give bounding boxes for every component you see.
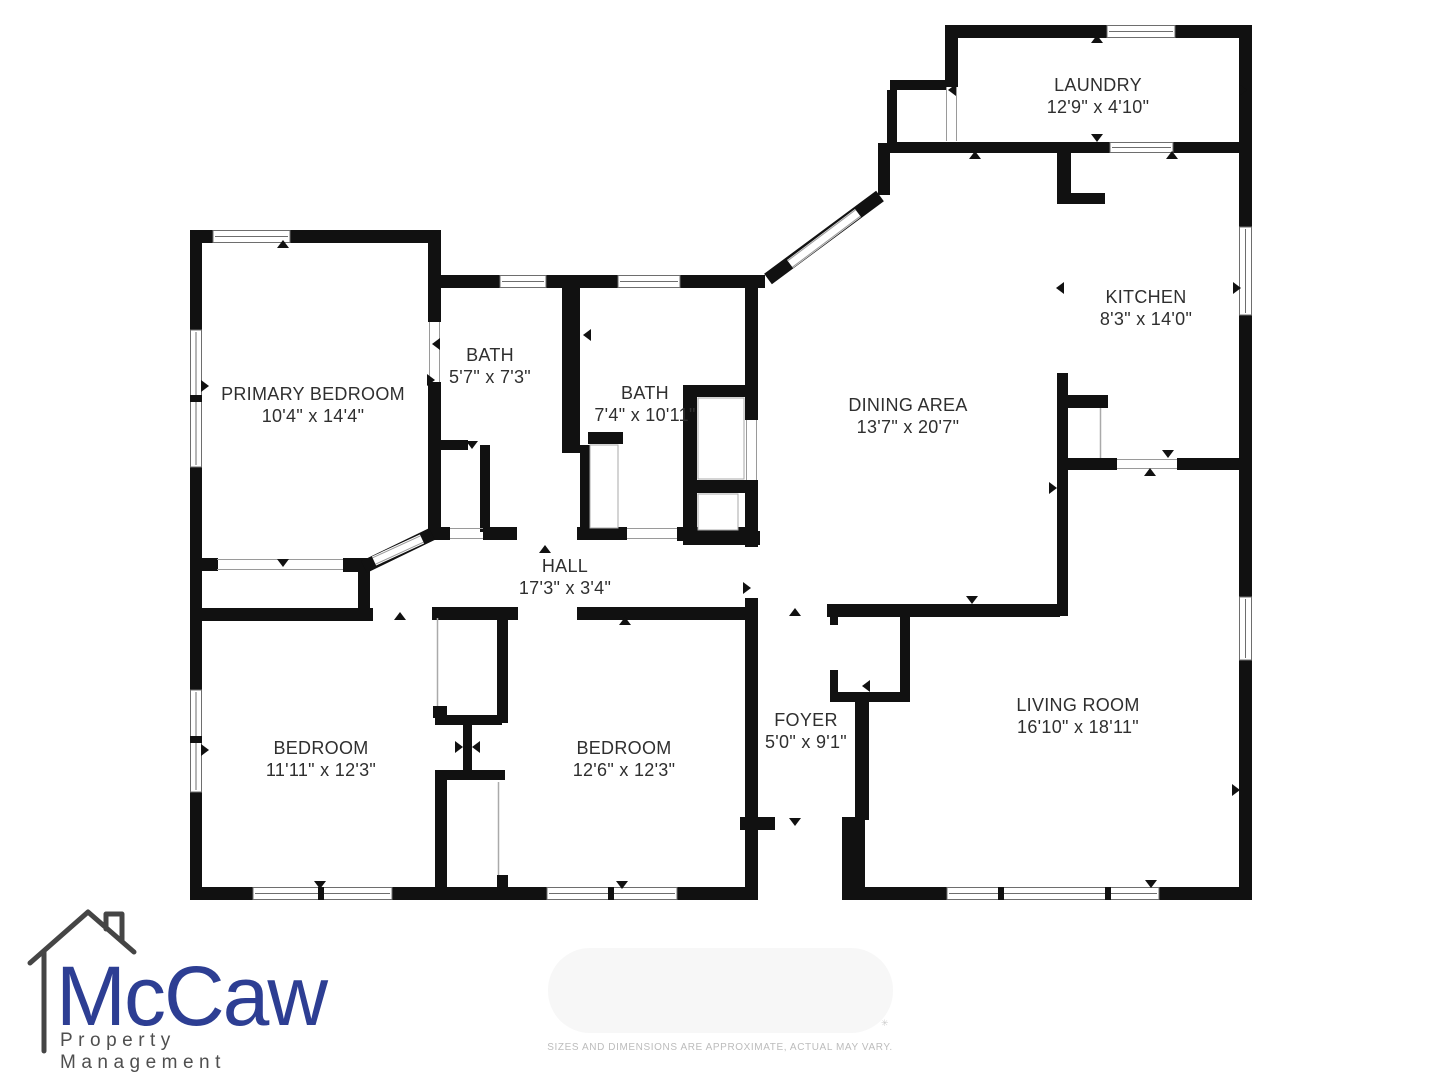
room-dimensions: 17'3" x 3'4" (519, 577, 611, 599)
room-label-bath-1: BATH5'7" x 7'3" (449, 344, 531, 388)
room-label-primary-bedroom: PRIMARY BEDROOM10'4" x 14'4" (221, 383, 405, 427)
room-dimensions: 8'3" x 14'0" (1100, 308, 1192, 330)
door-arrow (743, 582, 751, 594)
room-label-foyer: FOYER5'0" x 9'1" (765, 709, 847, 753)
room-dimensions: 12'9" x 4'10" (1047, 96, 1150, 118)
door-arrow (862, 680, 870, 692)
disclaimer-text: SIZES AND DIMENSIONS ARE APPROXIMATE, AC… (0, 1042, 1440, 1053)
floor-plan-drawing (0, 0, 1440, 1080)
room-name: BATH (594, 382, 695, 404)
room-name: BATH (449, 344, 531, 366)
room-dimensions: 16'10" x 18'11" (1016, 716, 1139, 738)
door-arrow (1049, 482, 1057, 494)
room-name: BEDROOM (573, 737, 676, 759)
room-dimensions: 13'7" x 20'7" (848, 416, 967, 438)
room-name: FOYER (765, 709, 847, 731)
door-arrow (455, 741, 463, 753)
door-arrow (539, 545, 551, 553)
room-name: PRIMARY BEDROOM (221, 383, 405, 405)
room-name: HALL (519, 555, 611, 577)
room-name: LAUNDRY (1047, 74, 1150, 96)
floor-plan-page: ✳ (0, 0, 1440, 1080)
door-arrow (1056, 282, 1064, 294)
room-label-bath-2: BATH7'4" x 10'11" (594, 382, 695, 426)
door-arrow (583, 329, 591, 341)
door-arrow (966, 596, 978, 604)
room-dimensions: 7'4" x 10'11" (594, 404, 695, 426)
closet-lines (438, 398, 1101, 875)
room-dimensions: 12'6" x 12'3" (573, 759, 676, 781)
door-arrow (1091, 134, 1103, 142)
door-arrow (789, 608, 801, 616)
room-label-hall: HALL17'3" x 3'4" (519, 555, 611, 599)
door-arrow (1145, 880, 1157, 888)
room-label-laundry: LAUNDRY12'9" x 4'10" (1047, 74, 1150, 118)
room-dimensions: 5'0" x 9'1" (765, 731, 847, 753)
room-dimensions: 10'4" x 14'4" (221, 405, 405, 427)
door-arrow (277, 559, 289, 567)
room-label-bedroom-2: BEDROOM12'6" x 12'3" (573, 737, 676, 781)
room-name: DINING AREA (848, 394, 967, 416)
room-name: KITCHEN (1100, 286, 1192, 308)
room-label-kitchen: KITCHEN8'3" x 14'0" (1100, 286, 1192, 330)
door-arrow (1232, 784, 1240, 796)
room-label-dining-area: DINING AREA13'7" x 20'7" (848, 394, 967, 438)
door-arrow (201, 744, 209, 756)
door-arrow (432, 338, 440, 350)
room-label-living-room: LIVING ROOM16'10" x 18'11" (1016, 694, 1139, 738)
door-arrow (472, 741, 480, 753)
room-dimensions: 11'11" x 12'3" (266, 759, 376, 781)
door-arrow (1144, 468, 1156, 476)
room-name: BEDROOM (266, 737, 376, 759)
room-dimensions: 5'7" x 7'3" (449, 366, 531, 388)
room-name: LIVING ROOM (1016, 694, 1139, 716)
door-arrow (394, 612, 406, 620)
door-arrow (201, 380, 209, 392)
door-arrow (1162, 450, 1174, 458)
room-label-bedroom-1: BEDROOM11'11" x 12'3" (266, 737, 376, 781)
door-arrow (789, 818, 801, 826)
